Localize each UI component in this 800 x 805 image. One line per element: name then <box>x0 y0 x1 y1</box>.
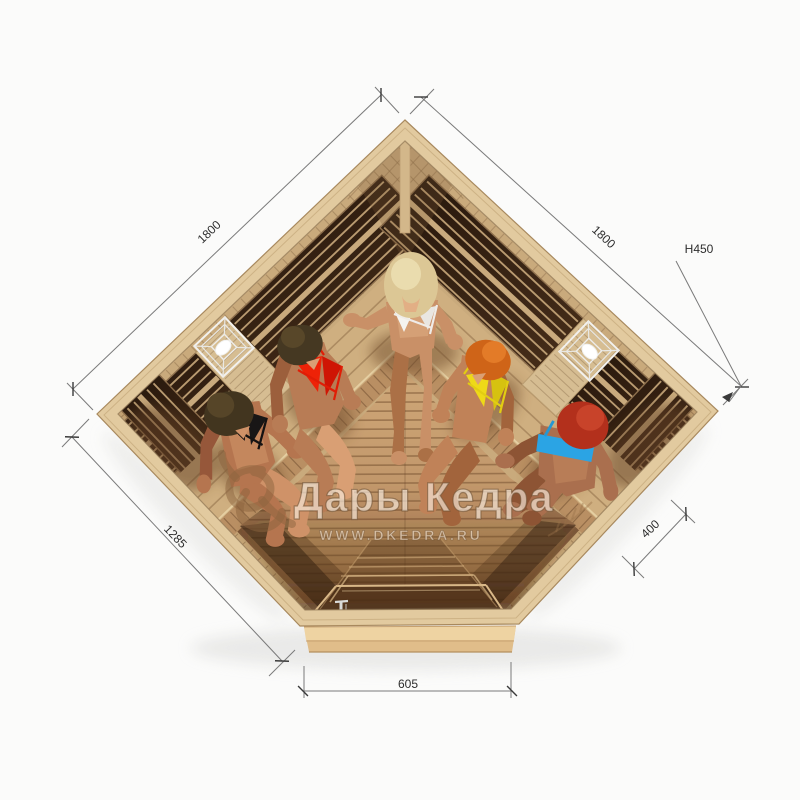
svg-text:H450: H450 <box>685 242 714 256</box>
svg-text:WWW.DKEDRA.RU: WWW.DKEDRA.RU <box>319 527 482 543</box>
svg-text:605: 605 <box>398 677 418 691</box>
svg-text:Дары Кедра: Дары Кедра <box>294 474 554 520</box>
